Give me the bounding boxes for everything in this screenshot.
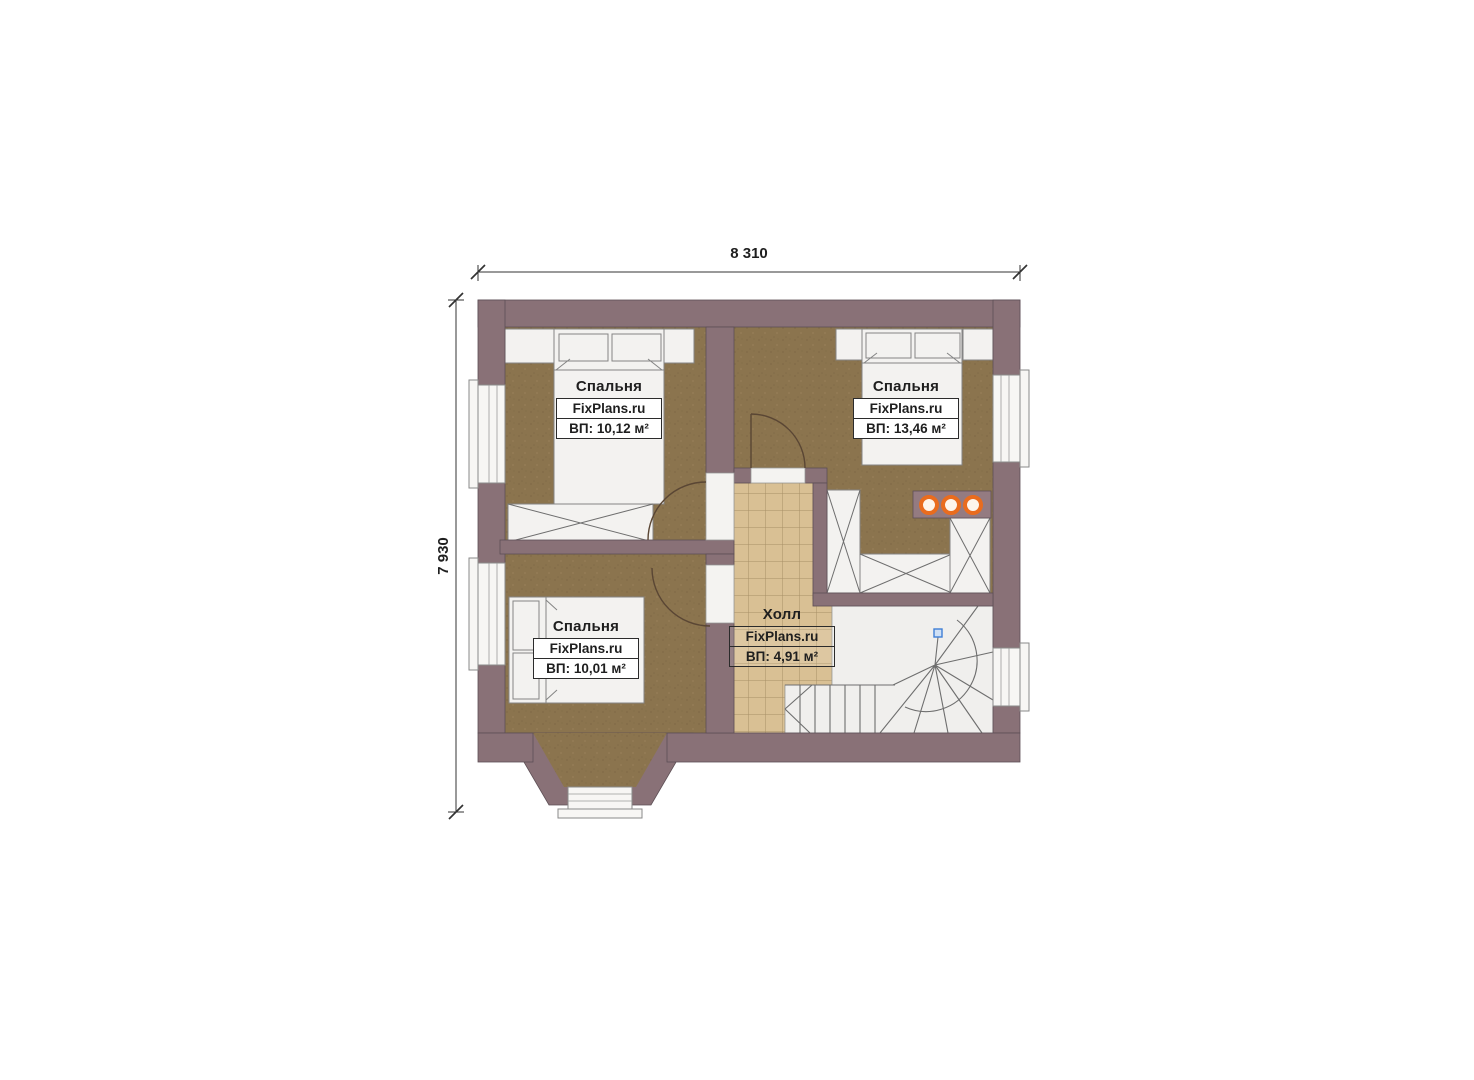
room-brand-box: FixPlans.ru xyxy=(533,638,639,659)
dimension-line-top xyxy=(478,265,1020,281)
room-label-bedroom-2: Спальня FixPlans.ru ВП: 13,46 м² xyxy=(846,378,966,439)
room-label-bedroom-1: Спальня FixPlans.ru ВП: 10,12 м² xyxy=(549,378,669,439)
interior-wall xyxy=(734,468,751,483)
room-name: Спальня xyxy=(873,378,939,395)
window-sill xyxy=(469,380,478,488)
room-area-box: ВП: 4,91 м² xyxy=(729,646,835,667)
window-sill xyxy=(1020,643,1029,711)
dimension-height-label: 7 930 xyxy=(435,516,453,596)
outer-wall-right xyxy=(993,706,1020,733)
dormer-niche xyxy=(662,329,694,363)
interior-wall xyxy=(813,483,827,599)
window-sill xyxy=(469,558,478,670)
dormer-niche xyxy=(963,329,993,360)
wardrobe xyxy=(508,504,653,542)
outer-wall-bottom xyxy=(478,733,533,762)
dimension-width-label: 8 310 xyxy=(699,245,799,262)
window-sill xyxy=(558,809,642,818)
outer-wall-right xyxy=(993,462,1020,648)
room-area-box: ВП: 10,01 м² xyxy=(533,658,639,679)
room-name: Холл xyxy=(763,606,801,623)
light-icon xyxy=(943,497,959,513)
room-name: Спальня xyxy=(576,378,642,395)
outer-wall-top xyxy=(478,300,1020,327)
window xyxy=(478,385,505,483)
floor-plan-page: Спальня FixPlans.ru ВП: 10,12 м² Спальня… xyxy=(0,0,1474,1080)
window xyxy=(478,563,505,665)
room-area-box: ВП: 13,46 м² xyxy=(853,418,959,439)
room-label-bedroom-3: Спальня FixPlans.ru ВП: 10,01 м² xyxy=(526,618,646,679)
vanity-lights xyxy=(913,491,991,518)
interior-wall xyxy=(706,327,734,473)
room-label-hall: Холл FixPlans.ru ВП: 4,91 м² xyxy=(726,606,838,667)
outer-wall-bottom xyxy=(667,733,1020,762)
room-brand-box: FixPlans.ru xyxy=(729,626,835,647)
light-icon xyxy=(965,497,981,513)
interior-wall xyxy=(805,468,827,483)
closet-unit xyxy=(827,490,860,593)
window xyxy=(993,648,1020,706)
outer-wall-left xyxy=(478,665,505,733)
stair-start-marker xyxy=(934,629,942,637)
floor-plan-drawing xyxy=(0,0,1474,1080)
door-threshold xyxy=(751,468,805,483)
dormer-niche xyxy=(505,329,555,363)
outer-wall-right xyxy=(993,300,1020,375)
interior-wall xyxy=(500,540,734,554)
closet-unit xyxy=(860,554,952,593)
window-sill xyxy=(1020,370,1029,467)
bay-window xyxy=(568,787,632,809)
dormer-niche xyxy=(836,329,864,360)
room-brand-box: FixPlans.ru xyxy=(853,398,959,419)
door-threshold xyxy=(706,473,734,540)
outer-wall-left xyxy=(478,300,505,385)
interior-wall xyxy=(706,554,734,565)
room-brand-box: FixPlans.ru xyxy=(556,398,662,419)
room-area-box: ВП: 10,12 м² xyxy=(556,418,662,439)
room-name: Спальня xyxy=(553,618,619,635)
window xyxy=(993,375,1020,462)
closet-unit xyxy=(950,518,990,593)
light-icon xyxy=(921,497,937,513)
interior-wall xyxy=(813,593,993,606)
